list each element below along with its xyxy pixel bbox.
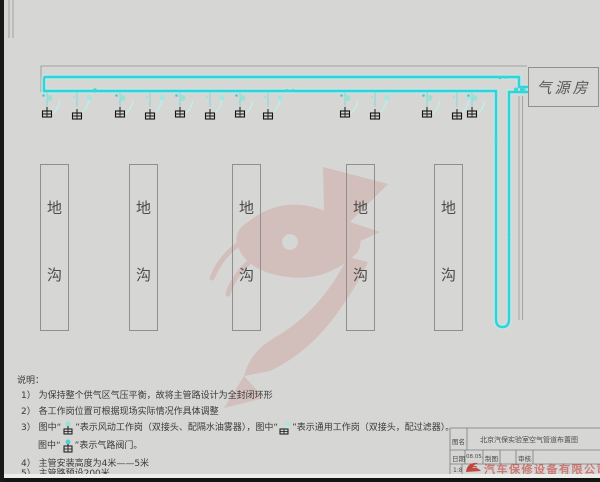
page-edge-left — [0, 0, 4, 482]
trench-box: 地 沟 — [40, 164, 69, 331]
note-line-3-text-b: ”表示风动工作岗（双接头、配隔水油雾器），图中“ — [75, 423, 278, 433]
trench-edge-lines — [519, 96, 523, 320]
trench-label-top: 地 — [239, 201, 254, 216]
note-line-3d-text-a: 图中“ — [38, 441, 61, 451]
note-line-3: 3） 图中“”表示风动工作岗（双接头、配隔水油雾器），图中“”表示通用工作岗（双… — [21, 420, 454, 440]
drawing-title: 北京汽保实验室空气管道布置图 — [480, 435, 598, 445]
trench-label-top: 地 — [47, 201, 62, 216]
note-line-3d: 图中“”表示气路阀门。 — [38, 438, 142, 458]
trench-box: 地 沟 — [434, 164, 463, 331]
scale-value: 1:8 — [453, 467, 462, 474]
note-line-1: 1） 为保持整个供气区气压平衡，故将主管路设计为全封闭环形 — [21, 388, 273, 401]
air-source-room-label: 气源房 — [536, 77, 590, 98]
trench-box: 地 沟 — [129, 164, 158, 331]
note-line-3-text-c: ”表示通用工作岗（双接头，配过滤器）。 — [292, 423, 454, 433]
scan-artifact-lines — [9, 0, 13, 38]
trench-box: 地 沟 — [346, 164, 375, 331]
note-line-3-text-a: 3） 图中“ — [21, 423, 61, 433]
trench-label-bottom: 沟 — [441, 268, 456, 283]
trench-label-bottom: 沟 — [353, 268, 368, 283]
general-station-icon — [279, 421, 291, 440]
trench-label-bottom: 沟 — [47, 268, 62, 283]
title-block-name-label: 图名: — [452, 436, 466, 446]
company-dragon-logo-icon — [464, 459, 482, 474]
page-edge-bottom — [0, 478, 600, 482]
trench-label-top: 地 — [136, 201, 151, 216]
trench-label-bottom: 沟 — [239, 268, 254, 283]
drawing-page: 地 沟 地 沟 地 沟 地 沟 地 沟 气源房 说明： 1） 为保持整个供气区气… — [0, 0, 600, 482]
trench-label-bottom: 沟 — [136, 268, 151, 283]
trench-label-top: 地 — [441, 201, 456, 216]
trench-label-top: 地 — [353, 201, 368, 216]
trench-box: 地 沟 — [232, 164, 261, 331]
workstation-drops — [42, 92, 485, 119]
note-line-3d-text-b: ”表示气路阀门。 — [75, 441, 143, 451]
notes-heading: 说明： — [17, 373, 44, 386]
note-line-2: 2） 各工作岗位置可根据现场实际情况作具体调整 — [21, 404, 219, 417]
air-source-room-box: 气源房 — [528, 67, 599, 107]
